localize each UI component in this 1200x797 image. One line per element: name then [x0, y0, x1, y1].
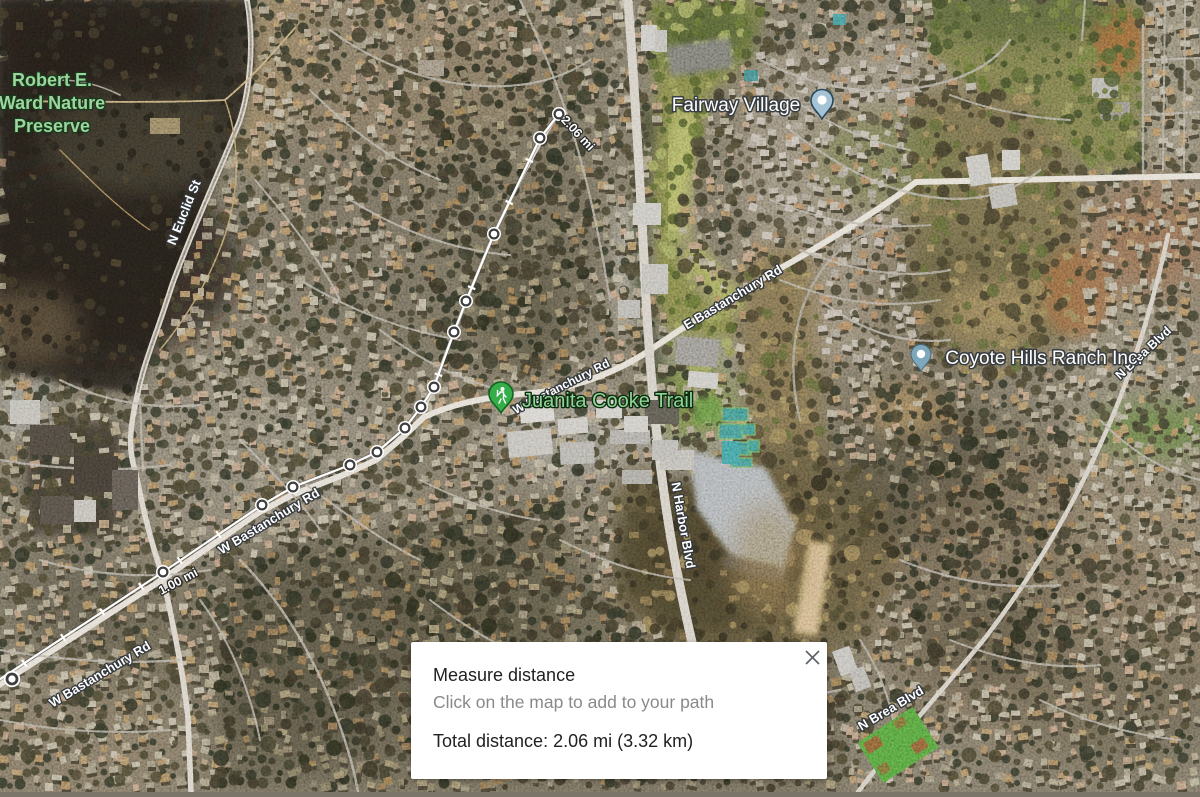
svg-text:Juanita Cooke Trail: Juanita Cooke Trail	[522, 390, 693, 412]
svg-text:Preserve: Preserve	[14, 116, 90, 136]
svg-text:Coyote Hills Ranch Inc.: Coyote Hills Ranch Inc.	[945, 348, 1142, 369]
svg-text:Robert E.: Robert E.	[12, 70, 92, 90]
svg-text:Ward Nature: Ward Nature	[0, 93, 105, 113]
svg-text:Fairway Village: Fairway Village	[672, 95, 800, 116]
